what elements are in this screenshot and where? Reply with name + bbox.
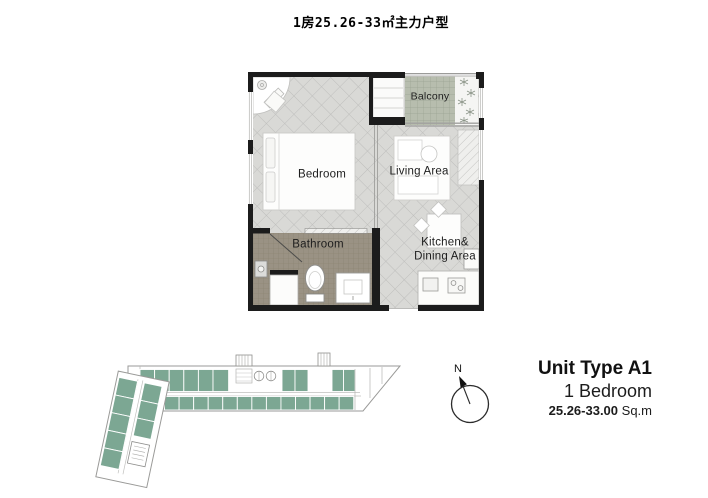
laundry-niche [270,275,298,305]
sink-icon [423,278,438,291]
wall [250,72,371,77]
unit-info: Unit Type A1 1 Bedroom 25.26-33.00 Sq.m [470,358,652,419]
bathroom-label: Bathroom [292,238,343,252]
page-title: 1房25.26-33㎡主力户型 [34,12,708,31]
north-label: N [454,363,462,375]
stove-icon [448,278,465,293]
left-wing [96,371,169,487]
bathroom-partition [305,229,367,234]
balcony-label: Balcony [411,90,450,104]
unit-area-unit: Sq.m [622,403,652,418]
floor-plan-drawing [248,68,484,314]
closet [373,77,404,118]
building-key-plan [60,348,405,498]
highlighted-units-bottom-row [150,397,354,411]
pillow-icon [266,172,275,202]
toilet-icon [306,265,325,291]
bedroom-label: Bedroom [298,168,346,182]
ceiling-fixture-icon [258,81,267,90]
unit-type: Unit Type A1 [470,358,652,380]
unit-area-value: 25.26-33.00 [549,403,618,418]
stair-core [318,353,330,366]
entry-threshold [389,308,418,309]
floor-plan: Bedroom Living Area Balcony Bathroom Kit… [248,68,484,314]
kitchen-dining-label: Kitchen& Dining Area [414,237,476,264]
living-area-label: Living Area [389,165,448,179]
unit-area: 25.26-33.00 Sq.m [470,403,652,419]
wardrobe [458,130,479,185]
side-table-icon [421,146,437,162]
unit-bedrooms: 1 Bedroom [470,380,652,402]
pillow-icon [266,138,275,168]
page: { "title": "1房25.26-33㎡主力户型", "floor_pla… [0,0,708,497]
